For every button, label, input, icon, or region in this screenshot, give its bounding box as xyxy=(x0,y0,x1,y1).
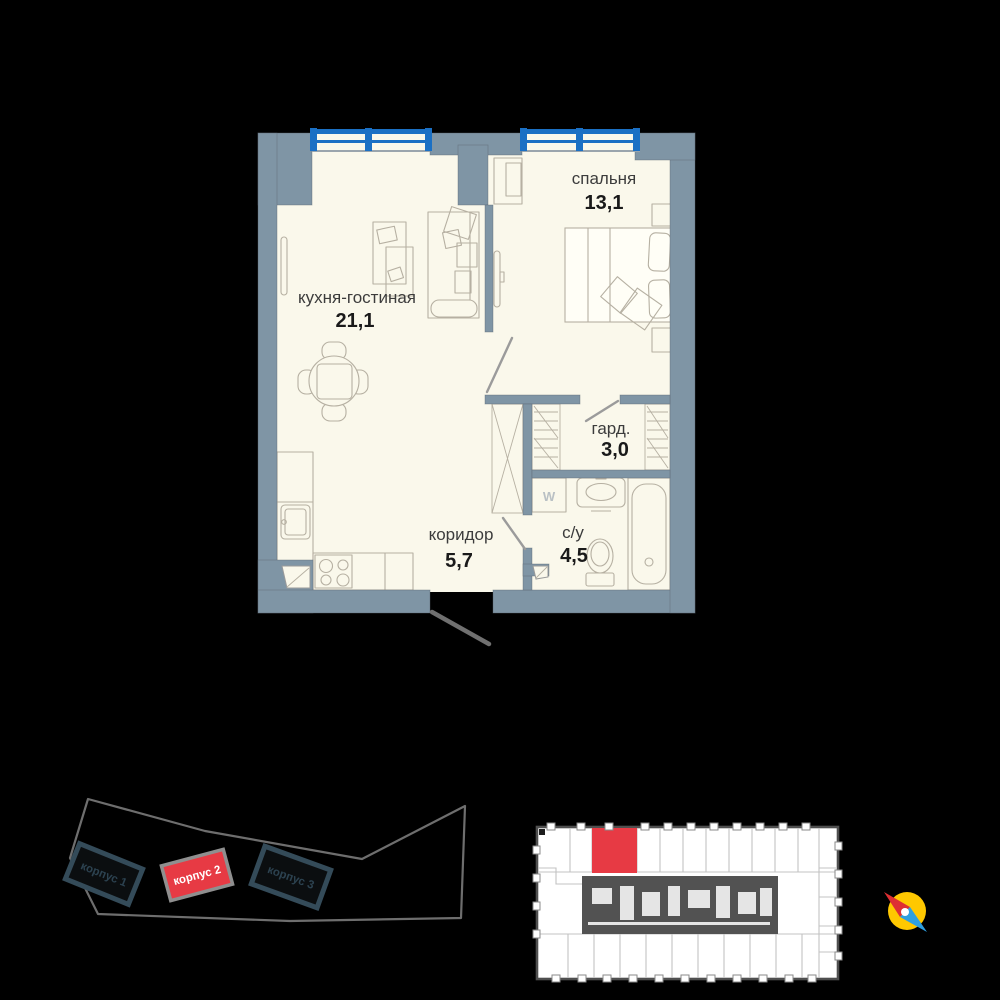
room-area-bathroom: 4,5 xyxy=(560,545,588,567)
room-area-corridor: 5,7 xyxy=(445,550,473,572)
page-background: кухня-гостиная 21,1 спальня 13,1 гард. 3… xyxy=(0,0,1000,1000)
entry-door-swing xyxy=(432,612,489,644)
key-plan-corner-marker xyxy=(539,829,545,835)
compass-icon xyxy=(884,892,927,932)
floor-plan: кухня-гостиная 21,1 спальня 13,1 гард. 3… xyxy=(258,128,695,644)
site-building-korpus-3[interactable]: корпус 3 xyxy=(251,846,330,908)
room-area-bedroom: 13,1 xyxy=(585,192,624,214)
wall-bottom-right xyxy=(493,590,695,613)
wall-bathroom-left xyxy=(523,404,532,515)
site-building-korpus-1[interactable]: корпус 1 xyxy=(65,844,142,905)
selected-unit-marker[interactable] xyxy=(592,828,637,873)
room-label-bedroom: спальня xyxy=(572,169,637,188)
room-label-bathroom: с/у xyxy=(562,523,584,542)
wall-right xyxy=(670,133,695,613)
room-label-wardrobe: гард. xyxy=(592,419,631,438)
room-label-kitchen-living: кухня-гостиная xyxy=(298,288,416,307)
wall-pillar-center xyxy=(458,145,488,205)
wall-left xyxy=(258,133,277,590)
wall-hall-a xyxy=(485,395,580,404)
room-area-kitchen-living: 21,1 xyxy=(336,310,375,332)
floor-key-plan xyxy=(533,823,842,982)
room-area-wardrobe: 3,0 xyxy=(601,439,629,461)
washer-label: W xyxy=(543,489,556,504)
wall-corner-top-right xyxy=(635,133,695,160)
room-label-corridor: коридор xyxy=(429,525,494,544)
wall-partition-bedroom xyxy=(485,205,493,332)
site-building-korpus-2[interactable]: корпус 2 xyxy=(161,849,232,900)
wall-wardrobe-bathroom xyxy=(532,470,670,478)
wall-hall-b xyxy=(620,395,670,404)
wall-bottom-left xyxy=(258,590,430,613)
site-plan: корпус 1 корпус 2 корпус 3 xyxy=(65,799,465,921)
bed xyxy=(565,228,672,330)
apartment-plan-canvas: кухня-гостиная 21,1 спальня 13,1 гард. 3… xyxy=(0,0,1000,1000)
